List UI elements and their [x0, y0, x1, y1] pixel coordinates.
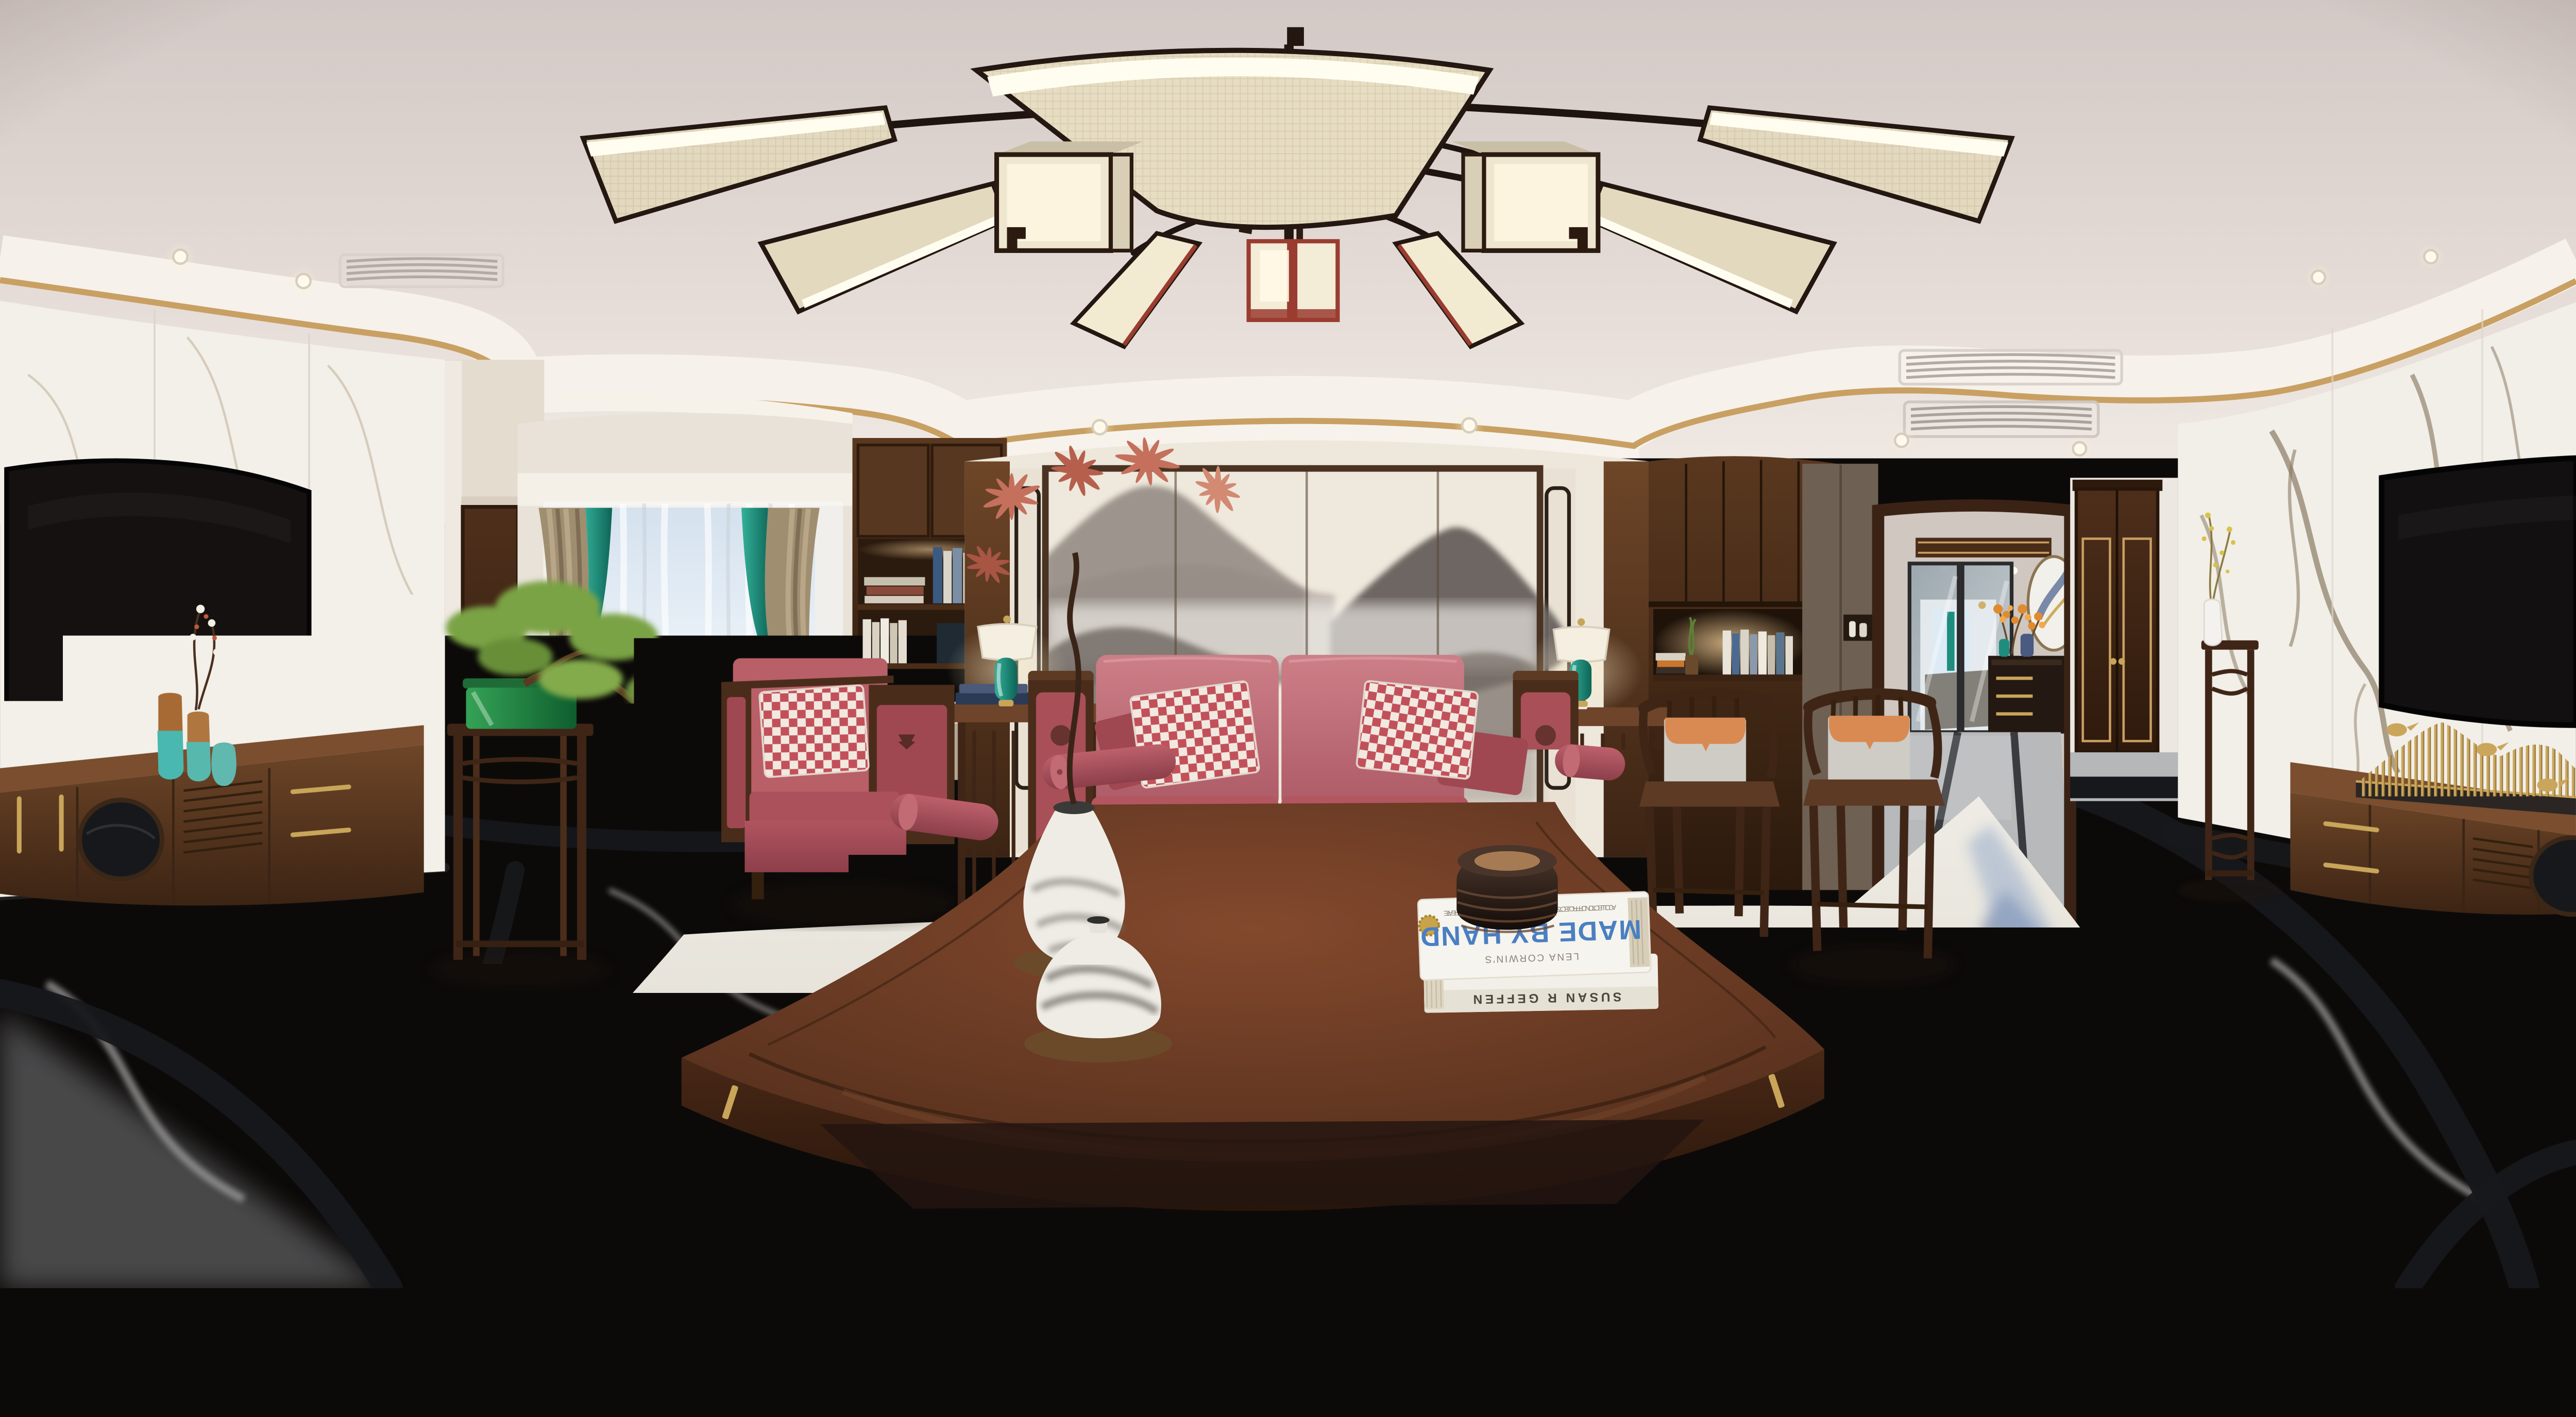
panorama-stage: CGAXIS	[0, 0, 2576, 1288]
vignette	[0, 0, 2576, 1288]
living-room-panorama: CGAXIS	[0, 0, 2576, 1288]
